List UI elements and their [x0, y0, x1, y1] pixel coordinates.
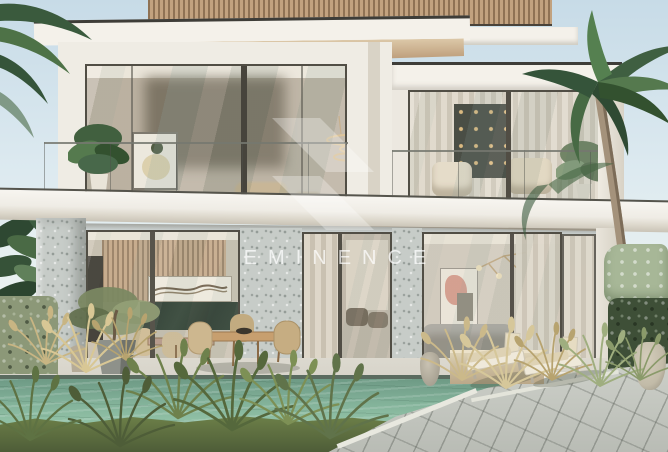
watermark-text: EMINENCE — [215, 247, 455, 270]
palm-fronds-top-left — [0, 0, 122, 166]
ornamental-grasses — [0, 268, 668, 452]
architectural-render: EMINENCE — [0, 0, 668, 452]
watermark-logo — [262, 118, 408, 246]
